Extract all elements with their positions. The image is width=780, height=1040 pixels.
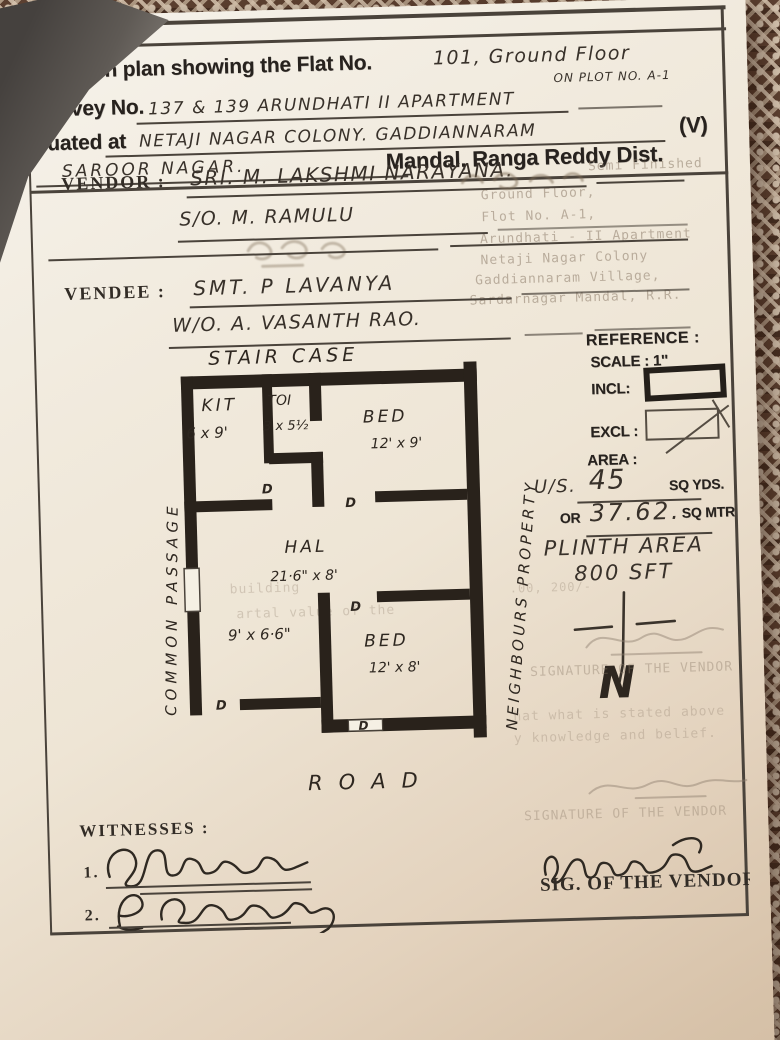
door-label: D bbox=[350, 600, 361, 615]
area-value2-handwritten: 37.62. bbox=[589, 497, 681, 528]
ink-marks bbox=[456, 165, 587, 197]
door-label: D bbox=[358, 719, 368, 733]
header-line1b-handwritten: ON PLOT NO. A-1 bbox=[553, 68, 670, 85]
room5-dim: 9' x 6·6" bbox=[228, 625, 291, 645]
room-toi-dim: 3 x 5½ bbox=[263, 418, 309, 434]
room-hal-name: HAL bbox=[284, 537, 327, 558]
registration-plan-document: tration plan showing the Flat No. 101, G… bbox=[24, 3, 751, 940]
vendor-underline-end bbox=[596, 180, 684, 184]
vendor-signature-label: SIG. OF THE VENDOR bbox=[540, 869, 751, 897]
room-kit-name: KIT bbox=[201, 395, 237, 416]
or-label: OR bbox=[560, 510, 581, 527]
faded-signature-1 bbox=[581, 611, 732, 660]
room-kit-dim: 6 x 9' bbox=[186, 423, 228, 442]
road-label: ROAD bbox=[308, 768, 434, 795]
bleed-frag-sig2: SIGNATURE OF THE VENDOR bbox=[524, 804, 727, 825]
vendee-name: SMT. P LAVANYA bbox=[193, 271, 396, 301]
witness2-signature bbox=[103, 872, 355, 940]
bleed-line: Gaddiannaram Village, bbox=[475, 268, 661, 288]
door-label: D bbox=[216, 699, 227, 714]
door-label: D bbox=[345, 496, 356, 511]
vendee-relation: W/O. A. VASANTH RAO. bbox=[172, 308, 422, 337]
room-bed1-name: BED bbox=[363, 406, 408, 427]
plan-walls bbox=[181, 361, 487, 745]
plinth-area-line1: PLINTH AREA bbox=[543, 532, 704, 560]
photo-of-document: tration plan showing the Flat No. 101, G… bbox=[0, 0, 780, 1040]
room-hal-dim: 21·6" x 8' bbox=[270, 567, 338, 585]
vendor-label: VENDOR : bbox=[61, 171, 166, 195]
vendee-label: VENDEE : bbox=[64, 281, 166, 305]
header-line1-handwritten: 101, Ground Floor bbox=[433, 42, 631, 70]
area-value-handwritten: 45 bbox=[588, 464, 626, 496]
header-line3-printed: uated at bbox=[47, 130, 127, 156]
top-border-inner bbox=[110, 27, 726, 47]
incl-label: INCL: bbox=[591, 380, 630, 398]
faded-signature-2 bbox=[585, 765, 751, 805]
bleed-frag-amount: .00, 200/- bbox=[510, 579, 593, 595]
excl-diagonal-mark bbox=[634, 395, 738, 460]
area-us-handwritten: U/S. bbox=[534, 476, 577, 498]
paper-sheet: tration plan showing the Flat No. 101, G… bbox=[0, 0, 777, 1040]
vendor-relation: S/O. M. RAMULU bbox=[179, 204, 355, 231]
room-bed1-dim: 12' x 9' bbox=[370, 435, 422, 452]
room-toi-name: TOI bbox=[267, 393, 291, 410]
staircase-label: STAIR CASE bbox=[208, 344, 359, 370]
witness2-number: 2. bbox=[84, 907, 100, 925]
room-bed2-name: BED bbox=[364, 630, 409, 651]
common-passage-label: COMMON PASSAGE bbox=[162, 501, 181, 716]
reference-title: REFERENCE : bbox=[586, 329, 700, 350]
bleed-line: Netaji Nagar Colony bbox=[480, 249, 648, 269]
bleed-line: Flot No. A-1, bbox=[481, 207, 596, 225]
line2-underline-end bbox=[578, 105, 662, 109]
bleed-line: Semi Finished bbox=[588, 156, 703, 174]
entrance-door-symbol bbox=[184, 568, 200, 611]
neighbours-property-label: NEIGHBOURS PROPERTY bbox=[503, 479, 540, 731]
area-unit2: SQ MTR bbox=[681, 503, 735, 520]
header-line3-suffix: (V) bbox=[679, 112, 708, 139]
left-border bbox=[25, 47, 52, 935]
floor-plan: STAIR CASE KIT 6 x 9' TOI 3 x 5½ BED 12'… bbox=[148, 333, 571, 804]
excl-label: EXCL : bbox=[590, 423, 638, 441]
door-label: D bbox=[262, 482, 273, 497]
area-unit: SQ YDS. bbox=[669, 476, 725, 494]
room-bed2-dim: 12' x 8' bbox=[369, 659, 421, 676]
witness1-number: 1. bbox=[83, 864, 99, 882]
